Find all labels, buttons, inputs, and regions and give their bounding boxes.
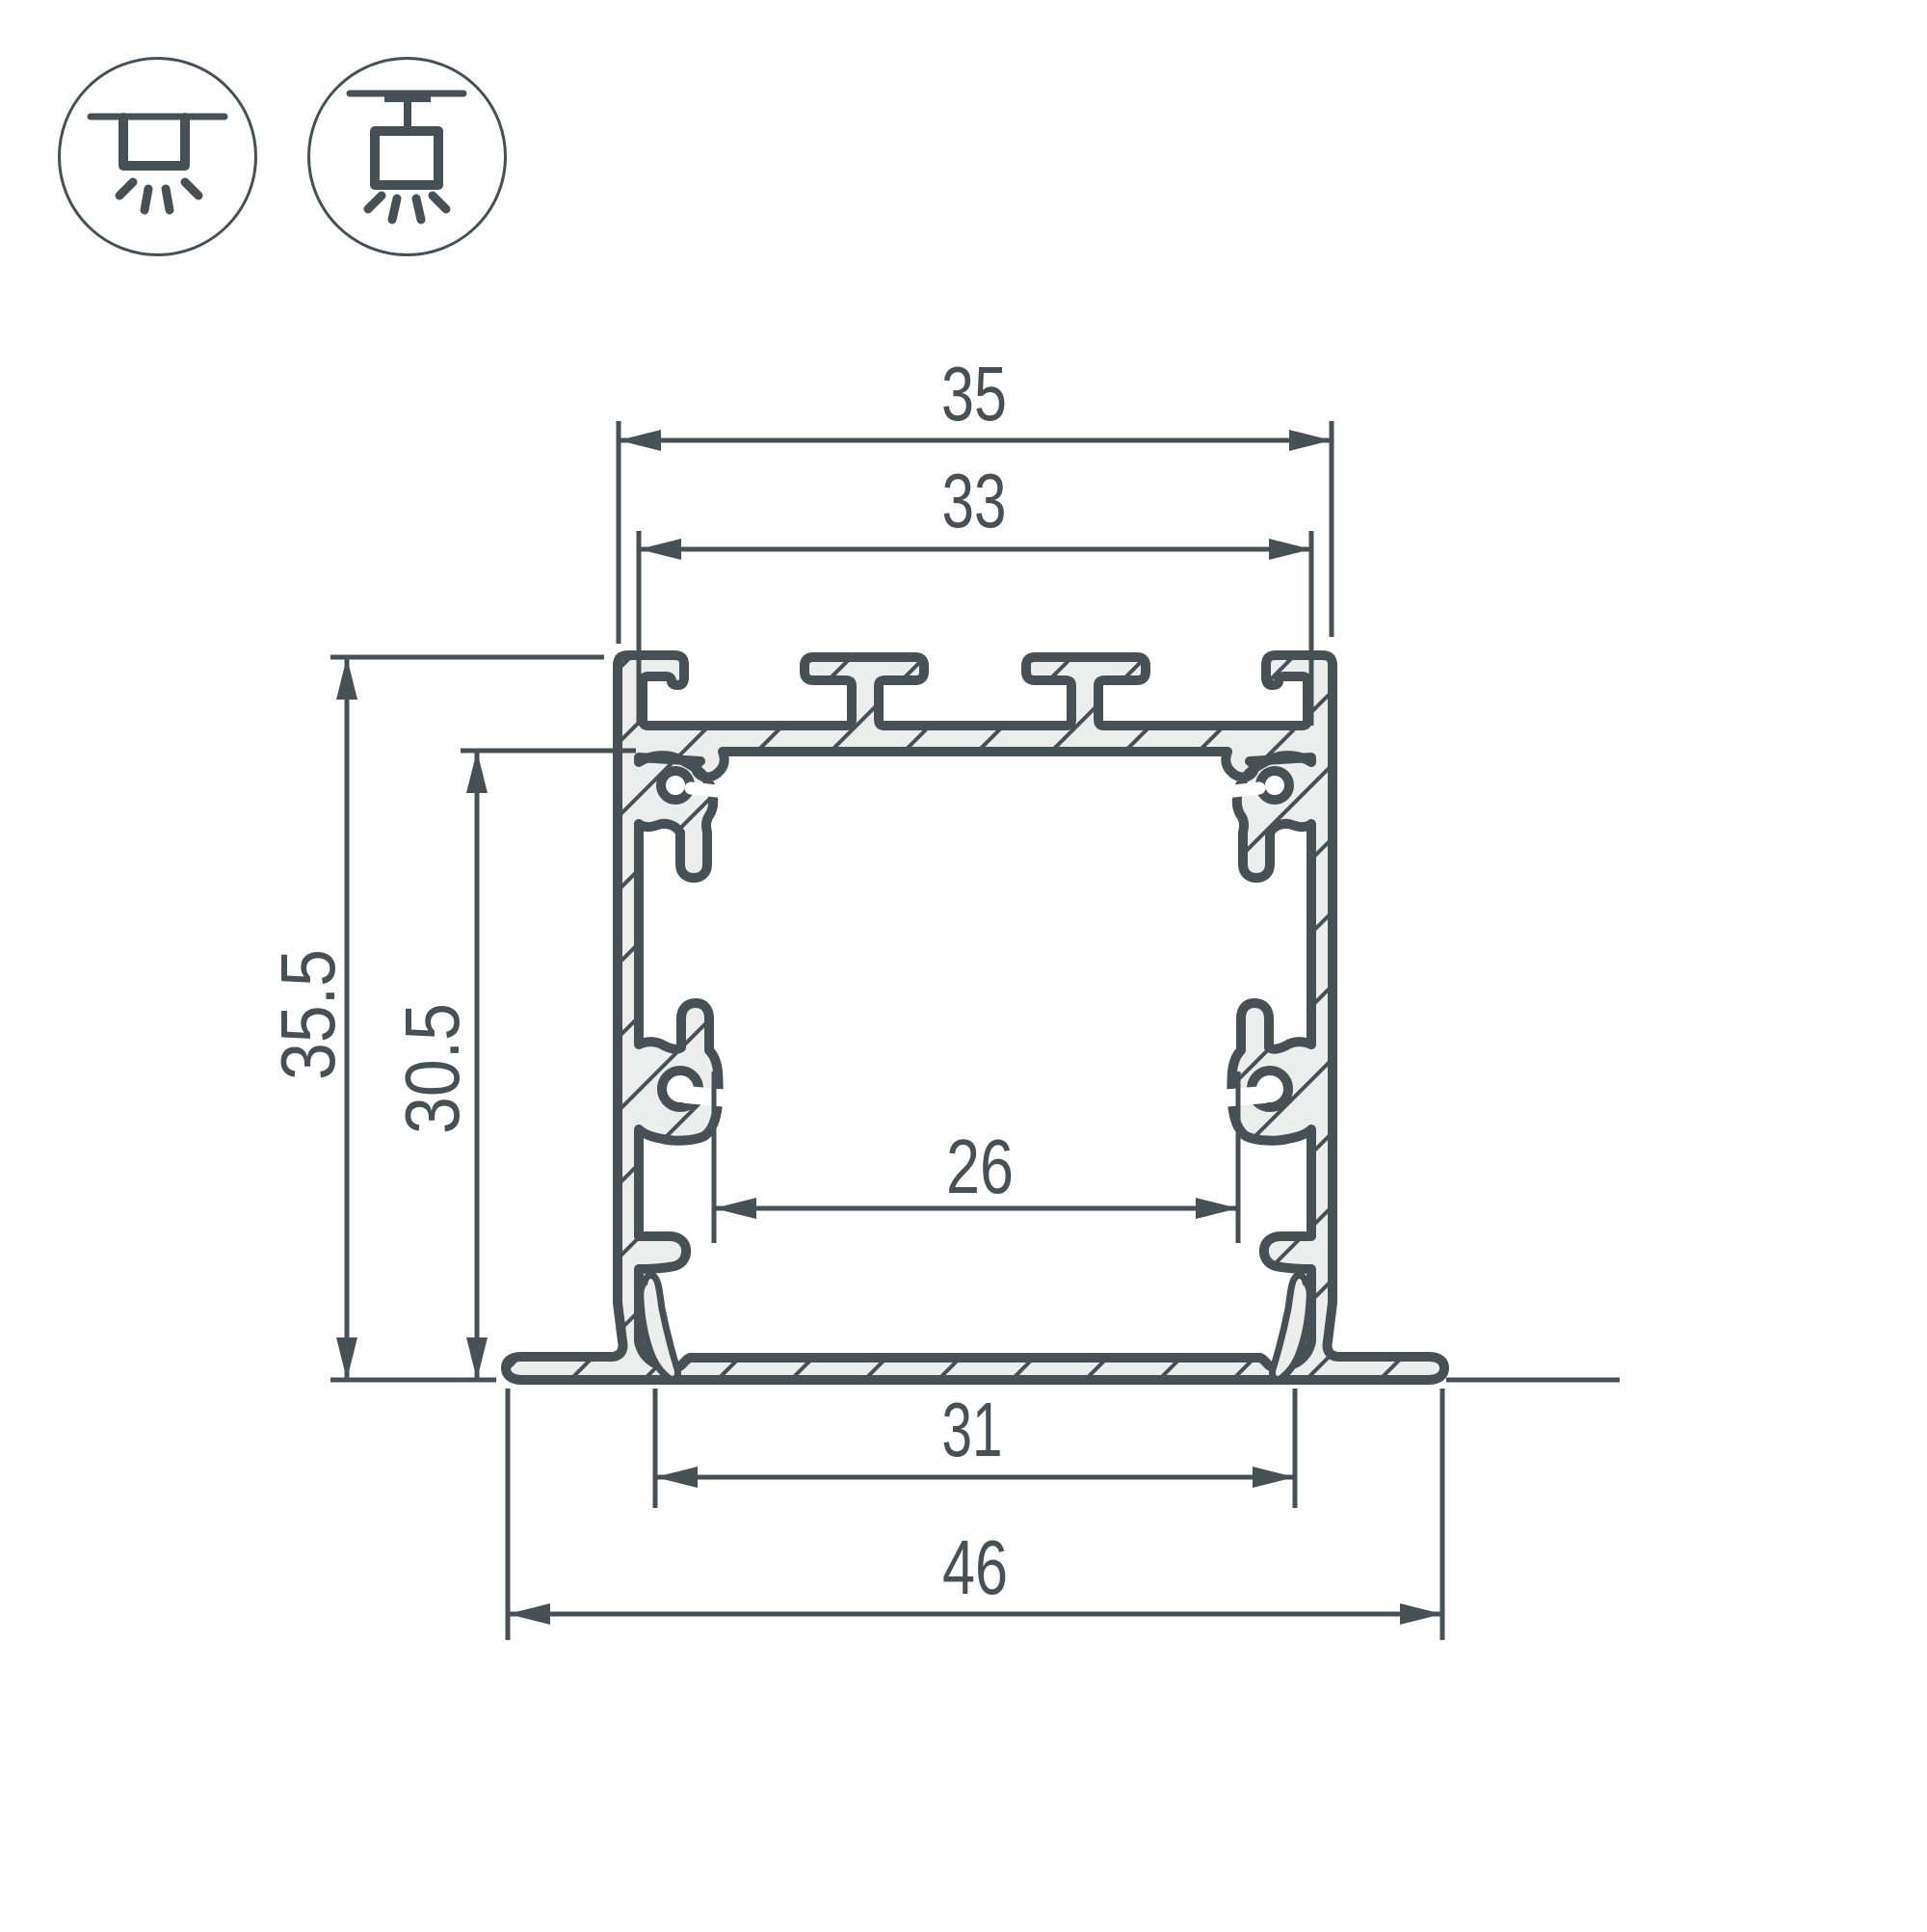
svg-text:35: 35: [941, 351, 1007, 437]
svg-text:46: 46: [942, 1524, 1008, 1610]
svg-text:26: 26: [946, 1124, 1014, 1209]
svg-text:33: 33: [942, 458, 1007, 543]
svg-text:30.5: 30.5: [389, 1003, 475, 1134]
svg-text:31: 31: [942, 1387, 1003, 1472]
svg-text:35.5: 35.5: [265, 949, 351, 1080]
